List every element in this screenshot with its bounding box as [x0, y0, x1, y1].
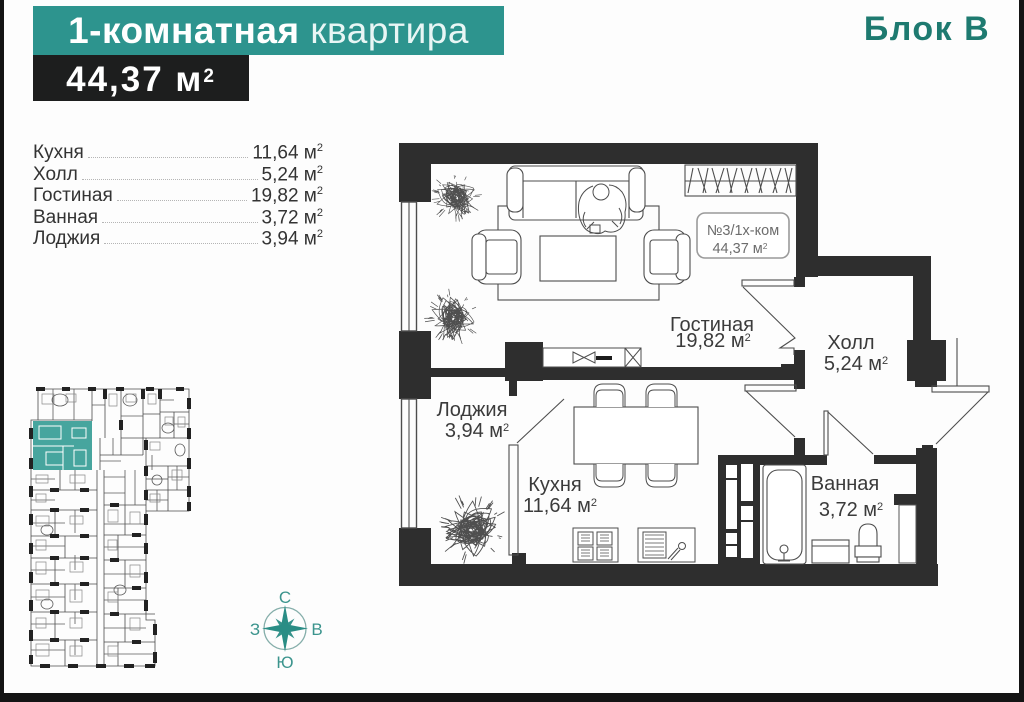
svg-text:Ванная: Ванная	[811, 473, 880, 495]
svg-text:В: В	[311, 620, 322, 639]
svg-text:З: З	[250, 620, 260, 639]
svg-text:19,82 м2: 19,82 м2	[675, 330, 750, 352]
svg-text:№3/1х-ком: №3/1х-ком	[707, 223, 779, 239]
svg-text:Холл: Холл	[827, 332, 874, 354]
svg-text:3,72 м2: 3,72 м2	[819, 499, 883, 521]
svg-text:Кухня: Кухня	[528, 474, 582, 496]
svg-text:11,64 м2: 11,64 м2	[523, 495, 597, 517]
svg-text:Лоджия: Лоджия	[437, 399, 508, 421]
svg-text:С: С	[279, 588, 291, 607]
svg-text:Ю: Ю	[276, 653, 293, 672]
svg-text:44,37 м2: 44,37 м2	[712, 241, 767, 257]
svg-text:3,94 м2: 3,94 м2	[445, 420, 509, 442]
svg-text:5,24 м2: 5,24 м2	[824, 353, 888, 375]
